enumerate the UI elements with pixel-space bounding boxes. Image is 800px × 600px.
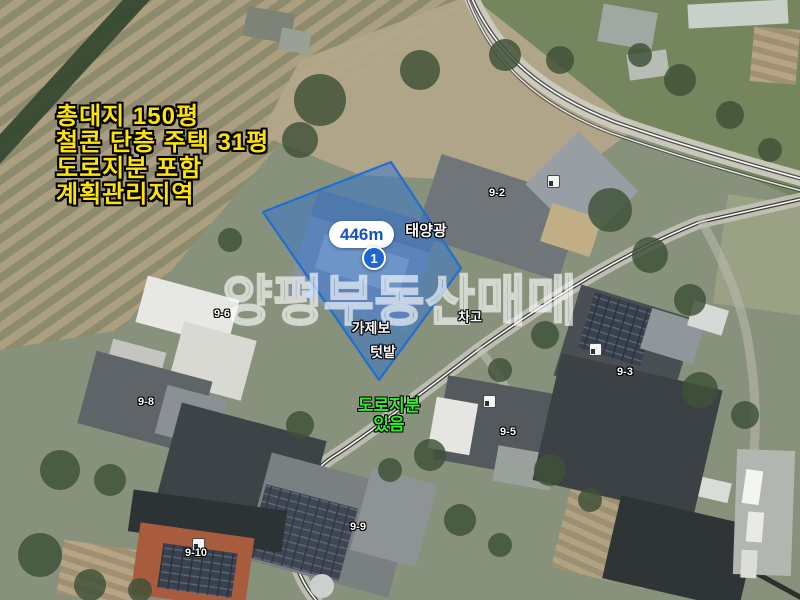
parcel-marker-1: 1 bbox=[362, 246, 386, 270]
parcel-number: 9-5 bbox=[500, 426, 516, 438]
distance-pill: 446m bbox=[329, 221, 394, 248]
label-solar: 태양광 bbox=[405, 220, 446, 241]
label-gazebo: 가제보 bbox=[352, 318, 391, 338]
info-line: 철콘 단층 주택 31평 bbox=[56, 130, 269, 156]
road-share-note: 도로지분 있음 bbox=[358, 396, 421, 434]
parcel-number: 9-9 bbox=[350, 521, 366, 533]
info-line: 계획관리지역 bbox=[56, 182, 269, 208]
watermark: 양평부동산매매 bbox=[223, 257, 578, 336]
info-line: 총대지 150평 bbox=[56, 104, 269, 130]
map-canvas[interactable]: 총대지 150평 철콘 단층 주택 31평 도로지분 포함 계획관리지역 양평부… bbox=[0, 0, 800, 600]
building-icon bbox=[547, 175, 560, 188]
label-garage: 차고 bbox=[458, 307, 482, 326]
listing-info-text: 총대지 150평 철콘 단층 주택 31평 도로지분 포함 계획관리지역 bbox=[56, 104, 269, 208]
building-icon bbox=[589, 343, 602, 356]
road-share-note-line: 도로지분 bbox=[358, 396, 421, 415]
building-icon bbox=[483, 395, 496, 408]
parcel-number: 9-10 bbox=[185, 547, 207, 559]
parcel-number: 9-6 bbox=[214, 308, 230, 320]
distance-value: 446m bbox=[340, 225, 383, 244]
parcel-number: 9-2 bbox=[489, 187, 505, 199]
parcel-number: 9-8 bbox=[138, 396, 154, 408]
label-garden: 텃밭 bbox=[370, 342, 396, 362]
info-line: 도로지분 포함 bbox=[56, 156, 269, 182]
parcel-number: 9-3 bbox=[617, 366, 633, 378]
road-share-note-line: 있음 bbox=[358, 415, 421, 434]
